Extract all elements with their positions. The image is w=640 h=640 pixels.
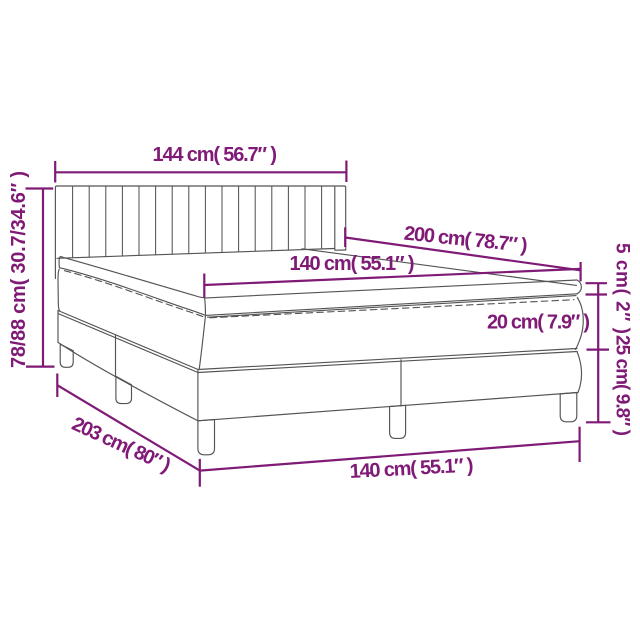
svg-text:140 cm( 55.1″ ): 140 cm( 55.1″ ) (349, 455, 474, 483)
svg-text:140 cm( 55.1″ ): 140 cm( 55.1″ ) (290, 253, 415, 275)
svg-text:78/88 cm( 30.7/34.6″ ): 78/88 cm( 30.7/34.6″ ) (8, 171, 30, 368)
svg-text:200 cm( 78.7″ ): 200 cm( 78.7″ ) (403, 223, 529, 257)
svg-text:144 cm( 56.7″ ): 144 cm( 56.7″ ) (153, 144, 278, 166)
svg-text:20 cm( 7.9″ ): 20 cm( 7.9″ ) (487, 312, 590, 334)
svg-text:5 cm( 2″ ): 5 cm( 2″ ) (612, 243, 633, 334)
svg-text:25 cm( 9.8″ ): 25 cm( 9.8″ ) (612, 335, 633, 436)
